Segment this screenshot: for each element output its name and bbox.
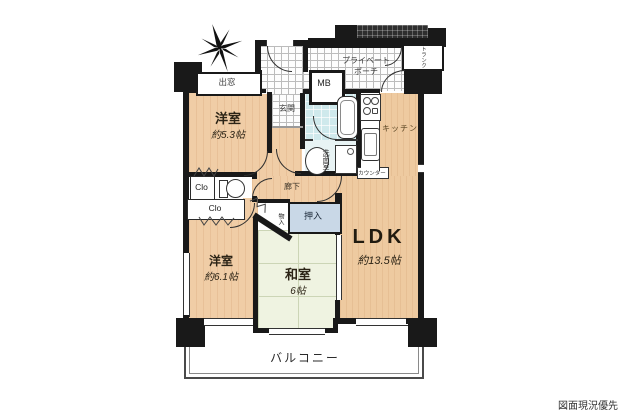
floorplan-canvas: 出窓 洋室 約5.3帖 玄関 プライベート ポーチ MB トランク キッチン 洗…	[0, 0, 628, 420]
balcony-railing-inner	[189, 347, 190, 374]
porch-label-line2: ポーチ	[330, 66, 402, 77]
toilet-bowl-icon	[226, 179, 245, 198]
washroom-label: 洗面室	[321, 144, 329, 174]
wall	[335, 139, 358, 141]
stove-icon	[360, 94, 381, 121]
room-japanese-label: 和室	[258, 264, 338, 283]
wall	[255, 40, 261, 74]
compass-north-icon	[192, 22, 248, 74]
burner-icon	[371, 97, 379, 105]
balcony-railing-inner	[418, 347, 419, 374]
porch-label-line1: プライベート	[330, 55, 402, 66]
closet-lower-label: Clo	[187, 203, 243, 213]
ldk-label: LDK	[340, 226, 418, 249]
folding-door-icon	[193, 167, 219, 177]
trunk-label: トランク	[420, 46, 426, 66]
washing-machine-dial	[347, 148, 354, 155]
room-western2-size: 約6.1帖	[189, 268, 253, 283]
wall	[305, 139, 313, 141]
closet-upper-label: Clo	[190, 182, 213, 192]
hallway-label: 廊下	[278, 181, 306, 192]
wall	[183, 73, 189, 253]
balcony-railing	[422, 347, 424, 379]
room-western1-size: 約5.3帖	[189, 126, 267, 141]
wall	[186, 318, 206, 324]
burner-icon	[372, 108, 378, 114]
folding-door-icon	[198, 216, 236, 226]
balcony-railing	[184, 347, 186, 379]
wall	[406, 318, 424, 324]
burner-icon	[363, 97, 371, 105]
wall-opening	[418, 164, 424, 173]
bathtub-inner	[340, 100, 355, 135]
storage-label: 物入	[276, 206, 283, 232]
wall	[267, 92, 272, 153]
disclaimer-note: 図面現況優先	[428, 397, 618, 412]
balcony-railing	[184, 377, 424, 379]
entrance-label: 玄関	[268, 103, 306, 114]
room-western1-label: 洋室	[189, 108, 267, 127]
entrance-step-line	[272, 126, 303, 128]
kitchen-sink-basin	[364, 133, 377, 156]
room-japanese-size: 6帖	[258, 282, 338, 297]
window	[204, 318, 256, 326]
oshiire-label: 押入	[288, 209, 338, 222]
meter-box-label: MB	[309, 78, 339, 88]
counter-label: カウンター	[357, 169, 387, 177]
window	[269, 328, 325, 335]
room-western2-label: 洋室	[189, 252, 253, 269]
ldk-size: 約13.5帖	[340, 252, 418, 268]
balcony-railing-inner	[189, 373, 419, 374]
balcony-label: バルコニー	[240, 349, 370, 366]
wall	[303, 46, 308, 72]
window	[356, 318, 408, 326]
bay-window-label: 出窓	[196, 76, 258, 88]
kitchen-label: キッチン	[380, 123, 420, 134]
burner-icon	[363, 107, 371, 115]
